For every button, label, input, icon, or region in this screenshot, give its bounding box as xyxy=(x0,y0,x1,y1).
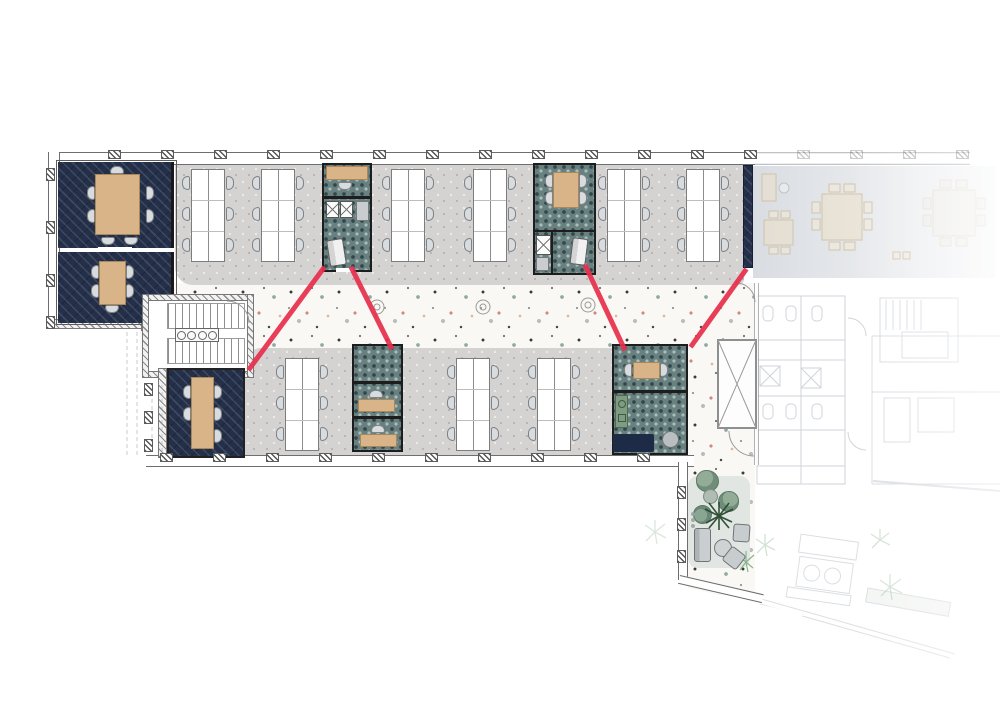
desk-bank xyxy=(391,169,425,262)
chair xyxy=(91,265,99,279)
chair xyxy=(624,363,632,377)
desk-bank xyxy=(537,358,571,451)
chair xyxy=(508,238,516,252)
door-gap xyxy=(336,268,353,272)
window-mark xyxy=(144,383,153,396)
chair xyxy=(491,365,499,379)
chair xyxy=(226,238,234,252)
chair xyxy=(721,238,729,252)
window-mark xyxy=(638,150,651,159)
window-mark xyxy=(425,453,438,462)
meeting-table-south xyxy=(191,377,214,449)
chair xyxy=(87,209,95,223)
chair xyxy=(371,425,385,433)
window-mark xyxy=(744,150,757,159)
chair xyxy=(508,176,516,190)
chair xyxy=(296,207,304,221)
chair xyxy=(320,427,328,441)
chair xyxy=(296,238,304,252)
chair xyxy=(528,396,536,410)
chair xyxy=(572,396,580,410)
window-mark xyxy=(266,453,279,462)
window-mark xyxy=(584,453,597,462)
chair xyxy=(721,176,729,190)
window-mark xyxy=(144,439,153,452)
stair-treads-upper xyxy=(167,303,245,329)
desk-bank xyxy=(191,169,225,262)
door-gap xyxy=(98,247,132,251)
chair xyxy=(545,174,553,188)
chair xyxy=(182,238,190,252)
locker-circle xyxy=(198,331,207,340)
chair xyxy=(598,207,606,221)
chair xyxy=(464,207,472,221)
chair xyxy=(183,385,191,399)
window-mark xyxy=(585,150,598,159)
chair xyxy=(721,207,729,221)
chair xyxy=(252,176,260,190)
desk-a xyxy=(326,166,368,180)
floor-plan-canvas xyxy=(0,0,1000,727)
chair xyxy=(426,176,434,190)
window-mark xyxy=(46,221,55,234)
chair xyxy=(528,365,536,379)
wall-d xyxy=(612,390,688,393)
window-mark xyxy=(956,150,969,159)
window-mark xyxy=(478,453,491,462)
chair xyxy=(426,207,434,221)
window-mark xyxy=(320,150,333,159)
chair xyxy=(572,365,580,379)
chair xyxy=(87,186,95,200)
chair xyxy=(182,207,190,221)
desk-bank xyxy=(686,169,720,262)
chair xyxy=(447,396,455,410)
desk-bank xyxy=(285,358,319,451)
window-mark xyxy=(46,168,55,181)
meeting-table-large xyxy=(95,174,140,235)
chair xyxy=(276,427,284,441)
window-mark xyxy=(677,518,686,531)
hob xyxy=(618,414,626,422)
stair-wall-right xyxy=(247,294,254,378)
window-mark xyxy=(691,150,704,159)
navy-shelf-strip xyxy=(743,165,753,268)
window-mark xyxy=(144,411,153,424)
chair xyxy=(296,176,304,190)
terrace-sofa xyxy=(694,528,711,562)
desk-bank xyxy=(473,169,507,262)
pantry-counter-d xyxy=(615,395,628,428)
fade-overlay xyxy=(850,0,1000,727)
chair xyxy=(677,238,685,252)
window-mark xyxy=(479,150,492,159)
chair xyxy=(598,238,606,252)
chair xyxy=(382,238,390,252)
window-mark xyxy=(267,150,280,159)
stair-landing-lockers xyxy=(175,328,219,342)
window-mark xyxy=(677,486,686,499)
chair xyxy=(320,365,328,379)
chair xyxy=(642,176,650,190)
desk-bank xyxy=(261,169,295,262)
chair xyxy=(642,207,650,221)
chair xyxy=(382,207,390,221)
window-mark xyxy=(850,150,863,159)
window-mark xyxy=(637,453,650,462)
chair xyxy=(426,238,434,252)
chair xyxy=(447,427,455,441)
solo-desk-c1 xyxy=(358,399,395,412)
chair xyxy=(252,207,260,221)
chair xyxy=(508,207,516,221)
chair xyxy=(226,176,234,190)
chair xyxy=(491,396,499,410)
chair xyxy=(528,427,536,441)
chair xyxy=(464,176,472,190)
meeting-table-small xyxy=(99,261,126,305)
chair xyxy=(276,365,284,379)
window-mark xyxy=(903,150,916,159)
meeting-table-b xyxy=(553,172,579,208)
table-d xyxy=(633,362,660,379)
terrace-armchair xyxy=(732,523,750,542)
beanbag xyxy=(693,505,712,524)
solo-desk-c2 xyxy=(360,434,397,447)
chair xyxy=(182,176,190,190)
chair xyxy=(91,284,99,298)
window-mark xyxy=(426,150,439,159)
window-mark xyxy=(677,550,686,563)
window-mark xyxy=(160,453,173,462)
wall-c1 xyxy=(352,381,403,384)
chair xyxy=(447,365,455,379)
chair xyxy=(677,176,685,190)
window-mark xyxy=(213,453,226,462)
window-mark xyxy=(531,453,544,462)
locker-b xyxy=(536,235,551,255)
desk-bank xyxy=(607,169,641,262)
window-mark xyxy=(46,274,55,287)
beanbag xyxy=(718,491,739,512)
wall-c2 xyxy=(352,416,403,419)
chair xyxy=(598,176,606,190)
chair xyxy=(320,396,328,410)
chair xyxy=(110,166,124,174)
locker-a2 xyxy=(340,201,353,218)
window-mark xyxy=(108,150,121,159)
locker-circle xyxy=(187,331,196,340)
pouf-d xyxy=(662,431,679,448)
sink xyxy=(618,400,626,408)
chair xyxy=(183,407,191,421)
desk-bank xyxy=(456,358,490,451)
cabinet-a xyxy=(356,201,369,221)
pouf xyxy=(703,489,718,504)
window-mark xyxy=(372,453,385,462)
locker-a1 xyxy=(326,201,339,218)
context-divider-wall xyxy=(754,283,759,465)
window-mark xyxy=(161,150,174,159)
chair xyxy=(252,238,260,252)
south-meeting-west-wall xyxy=(158,368,167,458)
chair xyxy=(677,207,685,221)
stairwell xyxy=(142,294,254,378)
chair xyxy=(545,191,553,205)
cabinet-b xyxy=(536,257,549,271)
booth-lounge-chair-b xyxy=(569,237,588,266)
window-mark xyxy=(46,316,55,329)
chair xyxy=(491,427,499,441)
wall-a xyxy=(322,196,372,199)
sofa-d xyxy=(613,434,654,452)
chair xyxy=(382,176,390,190)
window-mark xyxy=(532,150,545,159)
window-mark xyxy=(319,453,332,462)
stair-wall-left xyxy=(142,294,149,378)
window-mark xyxy=(797,150,810,159)
window-mark xyxy=(214,150,227,159)
locker-circle xyxy=(177,331,186,340)
chair xyxy=(276,396,284,410)
window-mark xyxy=(373,150,386,159)
chair xyxy=(226,207,234,221)
locker-circle xyxy=(208,331,217,340)
stair-wall-top xyxy=(142,294,254,301)
wall-b xyxy=(551,230,553,275)
chair xyxy=(642,238,650,252)
terrace-mask xyxy=(663,585,803,673)
chair xyxy=(369,390,383,398)
chair xyxy=(464,238,472,252)
chair xyxy=(572,427,580,441)
